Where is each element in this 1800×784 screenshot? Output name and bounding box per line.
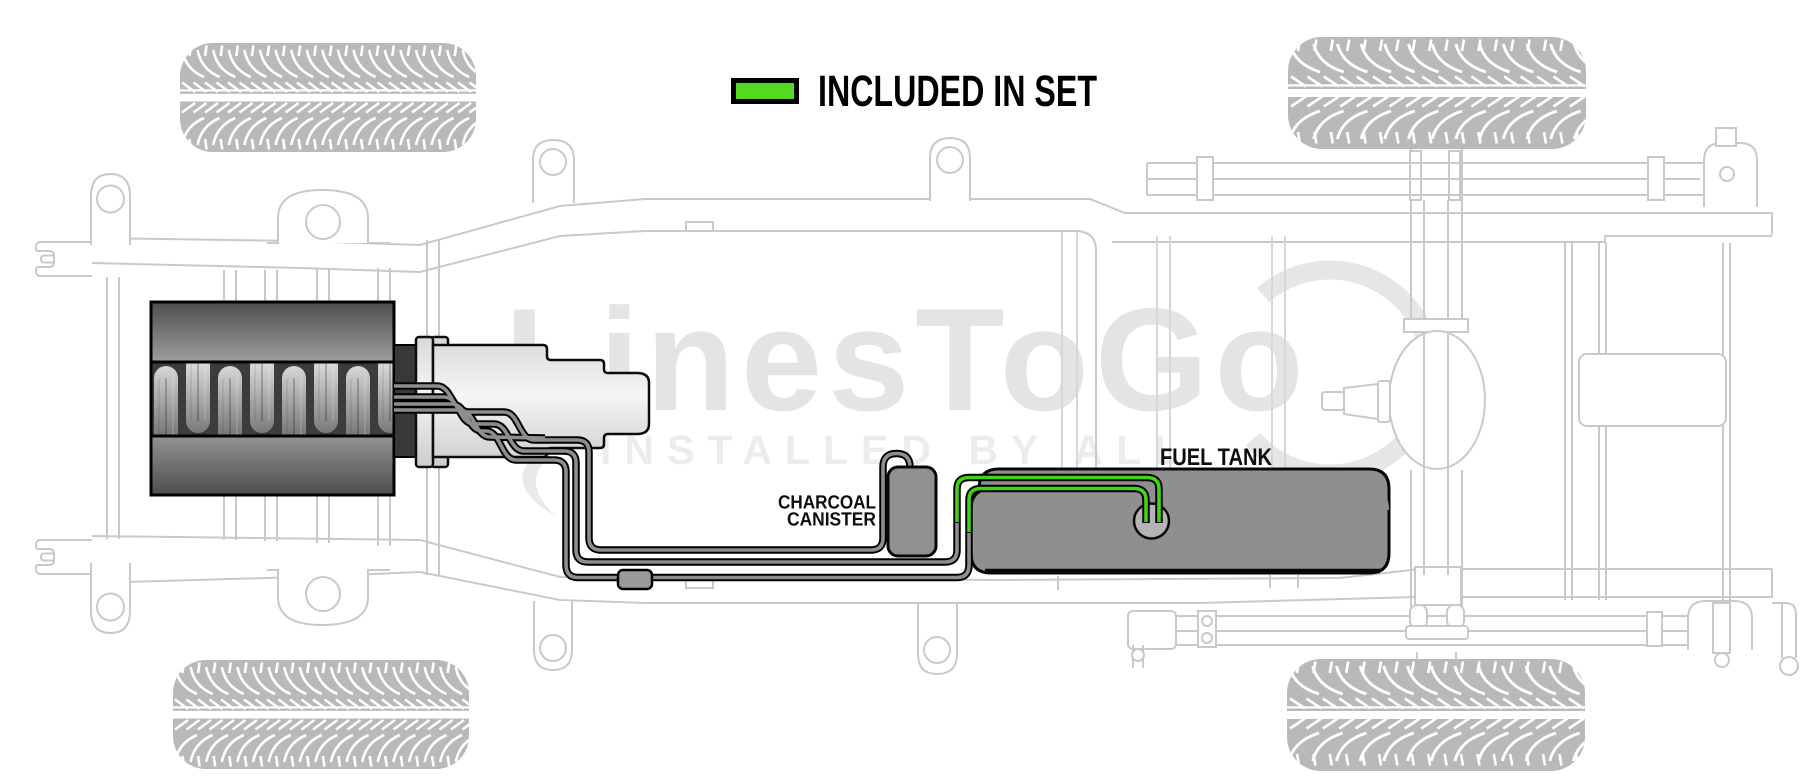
svg-text:INCLUDED IN SET: INCLUDED IN SET <box>818 67 1097 116</box>
svg-text:FUEL TANK: FUEL TANK <box>1160 444 1273 471</box>
svg-text:CANISTER: CANISTER <box>787 510 876 531</box>
